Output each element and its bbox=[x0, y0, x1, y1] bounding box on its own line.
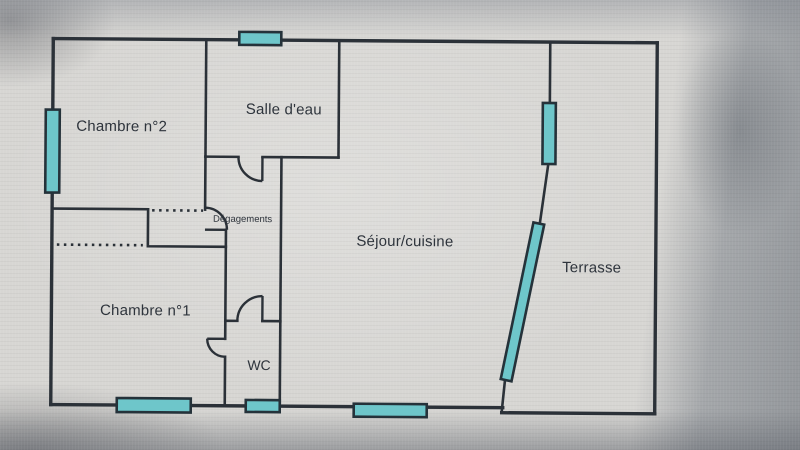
wall-top bbox=[53, 39, 657, 43]
wall-divider-lower bbox=[502, 381, 505, 412]
door-swing-salledeau bbox=[238, 157, 262, 181]
door-swing-chambre1 bbox=[207, 339, 225, 357]
room-label-chambre1: Chambre n°1 bbox=[100, 302, 191, 320]
wall-right bbox=[655, 43, 658, 414]
bay-window-marker bbox=[501, 222, 544, 381]
wall-divider-mid bbox=[540, 163, 548, 222]
room-label-chambre2: Chambre n°2 bbox=[76, 118, 167, 136]
dotted-line-lower bbox=[57, 245, 143, 246]
wall-chambre2-bottom-step bbox=[52, 209, 226, 247]
room-label-wc: WC bbox=[247, 357, 270, 373]
window-markers bbox=[44, 31, 557, 419]
window-marker-top bbox=[239, 32, 281, 45]
window-marker-sejour-south bbox=[354, 404, 427, 418]
window-marker-wc-south bbox=[246, 400, 280, 412]
wc-walls bbox=[225, 296, 280, 321]
chambre2-partitions bbox=[52, 209, 226, 247]
wall-corridor-east bbox=[280, 157, 282, 406]
wall-salledeau-bottom bbox=[205, 157, 338, 158]
window-marker-chambre1-south bbox=[117, 398, 191, 413]
floor-plan-drawing: Chambre n°2 Salle d'eau Dégagements Séjo… bbox=[0, 0, 800, 450]
wall-left bbox=[51, 39, 54, 405]
wall-salledeau-left bbox=[205, 40, 206, 157]
window-marker-sejour-east bbox=[542, 103, 555, 164]
floor-plan-photo: Chambre n°2 Salle d'eau Dégagements Séjo… bbox=[0, 0, 800, 450]
room-label-terrasse: Terrasse bbox=[562, 259, 621, 276]
room-label-salle-deau: Salle d'eau bbox=[246, 101, 322, 119]
wall-terrasse-bottom bbox=[502, 413, 655, 414]
door-swing-wc bbox=[237, 296, 262, 321]
room-label-sejour-cuisine: Séjour/cuisine bbox=[356, 233, 453, 251]
window-marker-left bbox=[45, 110, 60, 193]
room-label-degagements: Dégagements bbox=[213, 214, 272, 225]
outer-walls bbox=[51, 39, 658, 414]
wall-salledeau-right bbox=[338, 41, 339, 158]
